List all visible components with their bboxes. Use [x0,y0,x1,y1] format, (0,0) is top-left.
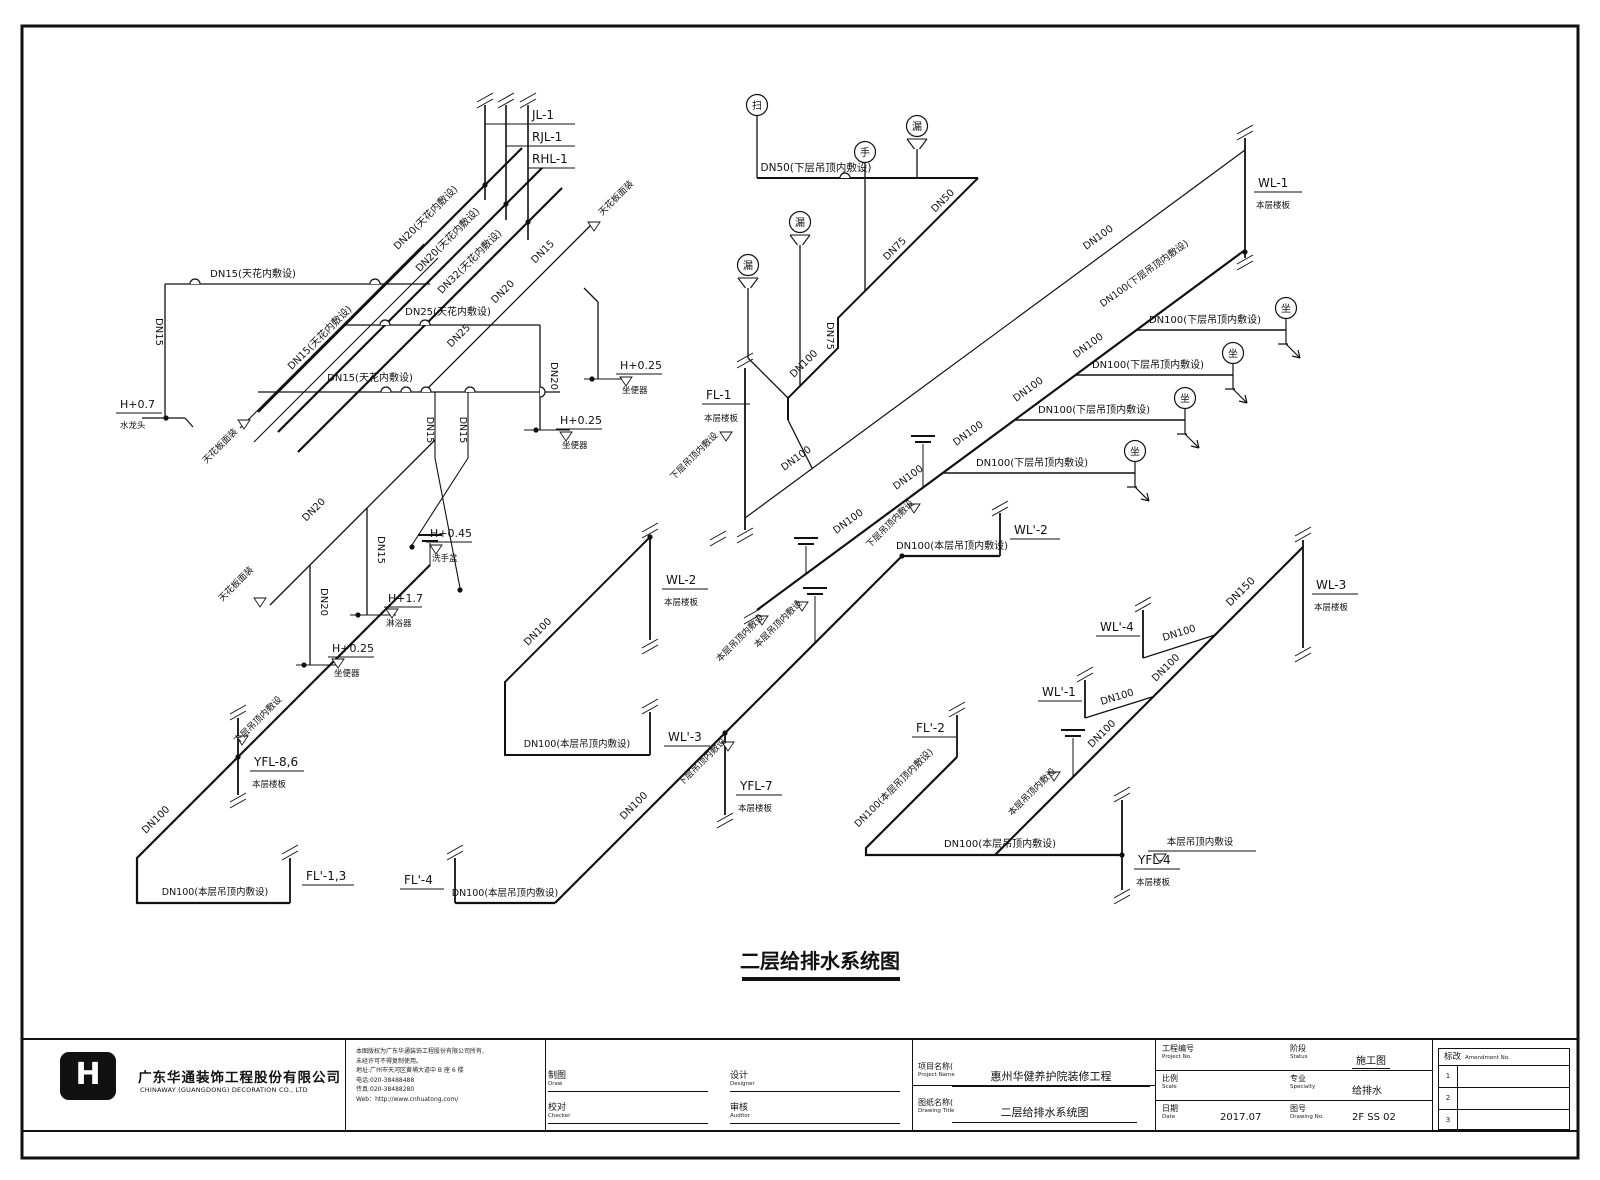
pipe-crossing [380,320,390,325]
revision-row: 2 [1439,1088,1569,1110]
drawing-title-value: 二层给排水系统图 [952,1104,1137,1123]
pipe-label: H+0.25 [560,414,602,427]
pipe-label: 本层楼板 [664,597,699,608]
pipe [584,288,598,379]
vent-cap-icon [803,588,827,594]
title-block: H 广东华通装饰工程股份有限公司 CHINAWAY (GUANGDONG) DE… [22,1038,1578,1132]
pipe-label: 水龙头 [120,420,146,431]
junction-dot [1119,852,1124,857]
pipe-label: DN100 [779,444,813,473]
company-notice: 本图版权为广东华通装饰工程股份有限公司所有,未经许可不得复制使用。地址:广州市天… [356,1047,538,1105]
pipe-label: 本层吊顶内敷设 [1167,836,1234,848]
pipe-label: 二层给排水系统图 [740,949,900,973]
pipe-label: DN25 [445,322,473,350]
pipe-label: DN20 [489,278,517,306]
pipe-label: DN20 [548,362,559,390]
pipe-label: WL'-1 [1042,685,1076,699]
pipe-label: YFL-7 [739,779,773,793]
pipe-label: H+0.25 [620,359,662,372]
pipe-label: 本层楼板 [1256,200,1291,211]
fixture-symbol-char: 坐 [1228,348,1238,360]
pipe-break-mark [1114,889,1130,904]
pipe-label: WL'-4 [1100,620,1134,634]
pipe [757,250,1245,610]
pipe-label: 天花板面装 [200,426,240,466]
pipe-label: 本层吊顶内敷设 [1005,765,1058,818]
junction-dot [457,587,462,592]
pipe-label: YFL-8,6 [253,755,298,769]
junction-dot [482,182,487,187]
vent-cap-icon [794,538,818,544]
pipe-label: DN20 [300,496,328,524]
pipe-crossing [370,279,380,284]
pipe-label: DN25(天花内敷设) [405,305,491,318]
junction-dot [533,427,538,432]
notice-line: 本图版权为广东华通装饰工程股份有限公司所有, [356,1047,538,1057]
revision-label: 标改 [1444,1052,1461,1062]
meta-value: 施工图 [1352,1052,1390,1069]
pipe-label: DN100 [1099,687,1135,708]
pipe-break-mark [710,531,726,546]
row-divider [1155,1100,1432,1101]
notice-line: 传真:020-38488280 [356,1085,538,1095]
pipe-label: WL-2 [666,573,696,587]
pipe-break-mark [717,813,733,828]
meta-label: 图号Drawing No. [1290,1104,1324,1120]
slab-drop-arrow-icon [1177,409,1199,448]
pipe-break-mark [642,639,658,654]
pipe-label: 淋浴器 [386,618,412,629]
slab-drop-arrow-icon [1278,319,1300,358]
pipe-label: H+1.7 [388,592,423,605]
fixture-symbol-char: 扫 [752,99,762,112]
divider [545,1040,546,1130]
pipe-crossing [540,387,545,397]
pipe-break-mark [1295,647,1311,662]
plumbing-system-diagram: 扫手漏漏漏坐坐坐坐 JL-1RJL-1RHL-1DN20(天花内敷设)DN20(… [0,0,1600,1180]
pipe-break-mark [1077,667,1093,682]
pipe-label: DN100 [788,348,820,380]
pipe-label: WL-1 [1258,176,1288,190]
fixture-symbol-char: 漏 [795,217,805,229]
pipe-labels: JL-1RJL-1RHL-1DN20(天花内敷设)DN20(天花内敷设)DN32… [116,108,1358,973]
divider [1432,1040,1433,1130]
pipe-label: FL-1 [706,388,731,402]
pipe-break-mark [737,528,753,543]
meta-value: 2017.07 [1220,1112,1261,1123]
pipe-crossing [420,320,430,325]
pipe-label: 天花板面装 [596,178,636,218]
pipe-break-mark [230,705,246,720]
pipe-crossing [190,279,200,284]
pipe-label: DN100 [1086,718,1118,750]
pipe-break-mark [282,845,298,860]
pipe-label: H+0.7 [120,398,155,411]
drawing-sheet: 扫手漏漏漏坐坐坐坐 JL-1RJL-1RHL-1DN20(天花内敷设)DN20(… [0,0,1600,1180]
floor-drain-funnel-icon [907,139,927,149]
revision-label-en: Amendment No. [1465,1055,1510,1061]
pipe-label: H+0.45 [430,527,472,540]
divider [1155,1040,1156,1130]
pipe-label: DN100(本层吊顶内敷设) [524,738,630,750]
junction-dot [301,662,306,667]
pipe-label: DN15 [457,417,468,444]
pipe-label: WL-3 [1316,578,1346,592]
junction-dot [355,612,360,617]
pipe [555,556,902,903]
pipe-label: DN100(本层吊顶内敷设) [944,837,1056,850]
pipe-crossing [465,387,475,392]
pipe-label: 本层楼板 [704,413,739,424]
pipe-break-mark [1237,125,1253,140]
project-name-label: 项目名称( Project Name [918,1062,955,1078]
fixture-symbol-char: 漏 [912,121,922,133]
pipe-label: DN15 [153,318,164,346]
pipe-label: DN100 [140,804,172,836]
pipe-label: JL-1 [531,108,554,122]
pipe-label: DN100 [618,790,650,822]
pipe-label: 本层楼板 [1314,602,1349,613]
notice-line: 未经许可不得复制使用。 [356,1057,538,1067]
pipe-label: YFL-4 [1137,853,1171,867]
pipe-crossing [401,387,411,392]
pipe-break-mark [1114,787,1130,802]
vent-cap-icon [1061,730,1085,736]
fixture-symbol-char: 坐 [1180,393,1190,405]
leader-triangle-icon [720,432,732,441]
junction-dot [503,201,508,206]
meta-value: 2F SS 02 [1352,1112,1396,1123]
pipe-label: RHL-1 [532,152,568,166]
junction-dot [722,730,727,735]
notice-line: 电话:020-38488488 [356,1076,538,1086]
notice-line: Web：http://www.cnhuatong.com/ [356,1095,538,1105]
pipe-label: DN100(下层吊顶内敷设) [1092,358,1204,371]
sign-field-designer: 设计Designer [730,1068,900,1092]
revision-table: 标改Amendment No. 123 [1438,1048,1570,1130]
pipe [270,440,435,605]
company-logo: H [60,1052,116,1100]
revision-row: 3 [1439,1110,1569,1131]
floor-drain-funnel-icon [790,235,810,245]
pipe-label: WL'-3 [668,730,702,744]
pipe-label: DN50(下层吊顶内敷设) [761,161,872,174]
pipe-label: DN100(本层吊顶内敷设) [852,746,936,830]
pipe-label: DN100(下层吊顶内敷设) [976,456,1088,469]
notice-line: 地址:广州市天河区黄埔大道中 B 座 6 楼 [356,1066,538,1076]
pipe-label: FL'-4 [404,873,433,887]
pipe-label: FL'-2 [916,721,945,735]
company-name-cn: 广东华通装饰工程股份有限公司 [138,1066,341,1086]
junction-dot [525,219,530,224]
pipe-label: 本层楼板 [1136,877,1171,888]
meta-label: 比例Scale [1162,1074,1178,1090]
pipe-label: DN20 [318,588,329,616]
fixture-symbol-char: 手 [860,146,870,159]
revision-row: 1 [1439,1066,1569,1088]
pipe [788,178,978,420]
pipe-break-mark [1295,527,1311,542]
sign-field-auditor: 审核Auditor [730,1100,900,1124]
junction-dot [589,376,594,381]
pipe-label: WL'-2 [1014,523,1048,537]
pipe-label: 天花板面装 [216,564,256,604]
pipe-label: DN100(本层吊顶内敷设) [162,886,268,898]
pipe-label: H+0.25 [332,642,374,655]
pipe-label: DN100(下层吊顶内敷设) [1149,313,1261,326]
pipe-label: 下层吊顶内敷设 [667,429,720,482]
pipe-break-mark [230,793,246,808]
pipe-break-mark [1135,597,1151,612]
pipe-label: DN100(下层吊顶内敷设) [1038,403,1150,416]
junction-dot [409,544,414,549]
slab-drop-arrow-icon [1127,462,1149,501]
pipe-break-mark [642,699,658,714]
junction-dot [235,754,240,759]
pipe-label: DN100 [522,616,554,648]
pipe-break-mark [447,845,463,860]
leader-triangle-icon [332,659,344,668]
leader-triangle-icon [254,598,266,607]
slab-drop-arrow-icon [1225,364,1247,403]
pipe-label: DN100 [831,507,865,536]
pipe-label: DN75 [881,235,909,263]
pipe-label: 坐便器 [622,385,648,396]
vent-cap-icon [911,436,935,442]
meta-label: 专业Specialty [1290,1074,1315,1090]
fixture-symbol-char: 漏 [743,260,753,272]
pipe-break-mark [737,353,753,368]
pipe-label: RJL-1 [532,130,562,144]
row-divider [1155,1070,1432,1071]
junction-dot [163,415,168,420]
pipe [137,565,430,903]
pipe-label: DN15 [529,238,557,266]
pipe-label: 本层楼板 [738,803,773,814]
pipe-label: DN150 [1224,575,1258,609]
junction-dot [899,553,904,558]
leader-triangle-icon [620,377,632,386]
pipe-label: DN100 [1161,623,1197,644]
sign-field-checker: 校对Checker [548,1100,708,1124]
pipe-break-mark [949,702,965,717]
pipe-label: 坐便器 [562,440,588,451]
leader-triangle-icon [430,545,442,554]
fixture-symbol-char: 坐 [1130,446,1140,458]
pipe-label: DN15(天花内敷设) [210,267,296,280]
leader-triangle-icon [386,609,398,618]
pipe-label: DN100 [1081,223,1115,252]
junction-dot [647,534,652,539]
pipe-label: DN75 [824,322,835,350]
pipe-crossing [381,387,391,392]
sign-field-draw: 制图Draw [548,1068,708,1092]
meta-label: 阶段Status [1290,1044,1308,1060]
meta-value: 给排水 [1352,1082,1382,1097]
symbol-glyphs: 扫手漏漏漏坐坐坐坐 [163,93,1311,904]
meta-label: 工程编号Project No. [1162,1044,1194,1060]
pipe-label: DN15(天花内敷设) [327,371,413,384]
pipe-label: DN100(本层吊顶内敷设) [452,887,558,899]
drawing-title-label: 图纸名称( Drawing Title [918,1098,954,1114]
divider [345,1040,346,1130]
fixture-symbol-char: 坐 [1281,303,1291,315]
pipe-lines [137,105,1303,979]
pipe-label: DN100(本层吊顶内敷设) [896,539,1008,552]
company-name-en: CHINAWAY (GUANGDONG) DECORATION CO., LTD [140,1086,308,1094]
row-divider [912,1085,1155,1086]
pipe-label: 本层楼板 [252,779,287,790]
pipe-label: DN15 [375,536,386,564]
leader-triangle-icon [560,432,572,441]
pipe-label: DN100 [1150,652,1182,684]
pipe-label: DN50 [929,187,957,215]
pipe-label: DN15 [424,417,435,444]
pipe-label: 洗手盆 [432,553,458,564]
sheet-border [22,26,1578,1158]
meta-label: 日期Date [1162,1104,1178,1120]
pipe-label: 坐便器 [334,668,360,679]
pipe [430,444,1073,777]
floor-drain-funnel-icon [738,278,758,288]
pipe-label: DN15(天花内敷设) [285,303,355,373]
junction-dot [1242,249,1247,254]
pipe-label: FL'-1,3 [306,869,346,883]
pipe-crossing [421,387,431,392]
